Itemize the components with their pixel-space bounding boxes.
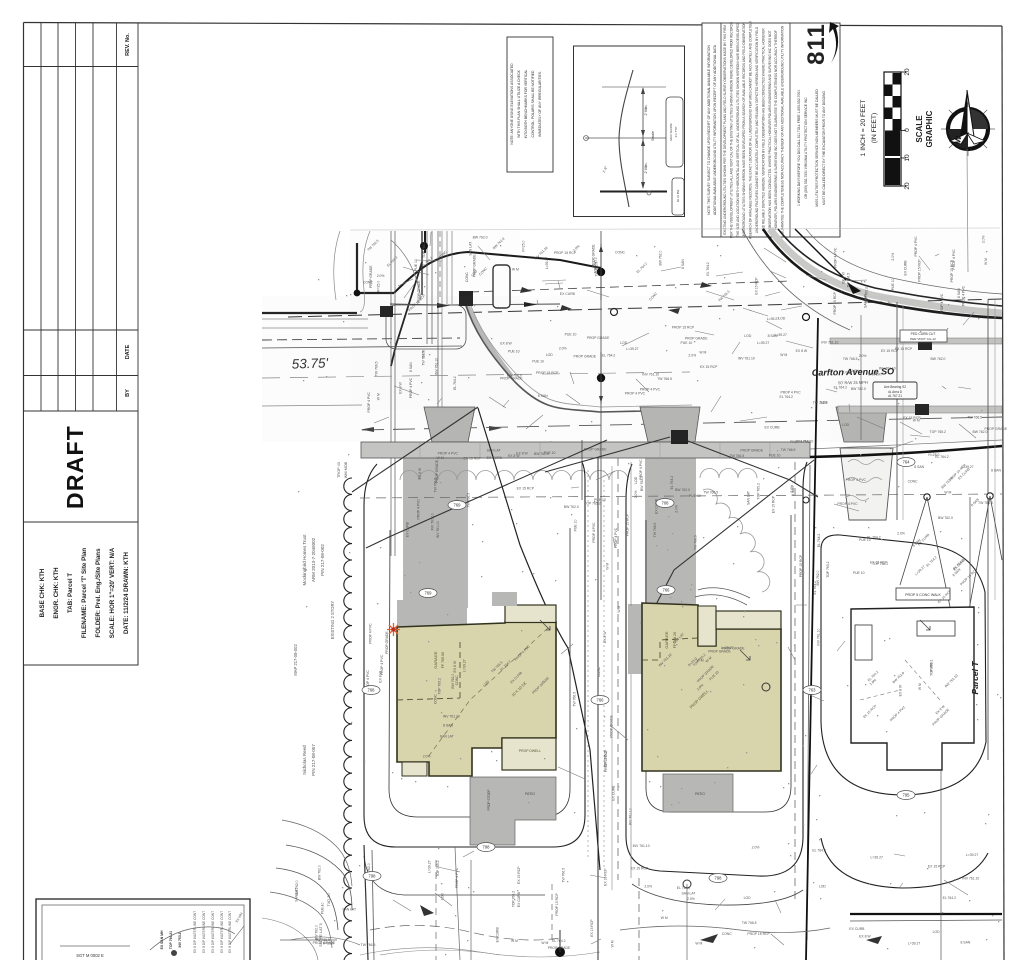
svg-text:FILENAME: Parcel 'T' Site P: FILENAME: Parcel 'T' Site Plan (81, 548, 88, 638)
svg-text:PROP 4 PVC: PROP 4 PVC (409, 377, 413, 398)
svg-text:PROP 15 RCP: PROP 15 RCP (536, 371, 559, 375)
svg-text:W M: W M (780, 353, 787, 357)
svg-text:EX 8 DIP WATERLINE CONT: EX 8 DIP WATERLINE CONT (220, 911, 224, 953)
svg-text:INV 753.2: INV 753.2 (178, 932, 182, 947)
svg-text:20: 20 (904, 182, 911, 190)
svg-text:PROP GRADE: PROP GRADE (722, 646, 745, 650)
svg-text:L=39.27: L=39.27 (908, 942, 920, 946)
svg-text:SAN LAT: SAN LAT (294, 888, 298, 902)
svg-text:EX 8 W: EX 8 W (516, 452, 528, 456)
svg-text:OR (800) 552-7001 VIRGINIA UTI: OR (800) 552-7001 VIRGINIA UTILITY PROTE… (804, 97, 808, 199)
svg-text:CONC: CONC (722, 932, 733, 936)
svg-text:W M: W M (541, 941, 548, 945)
svg-text:2.0%: 2.0% (634, 491, 638, 499)
svg-text:EX 8 W: EX 8 W (379, 670, 383, 682)
svg-text:DATE: 11/2/24 DRAWN: KTH: DATE: 11/2/24 DRAWN: KTH (123, 551, 130, 634)
svg-text:IMMEDIATELY OF ANY IRREGULARIT: IMMEDIATELY OF ANY IRREGULARITIES. (538, 71, 542, 137)
svg-text:MAX SLOPE: MAX SLOPE (669, 123, 673, 140)
svg-text:PROP GRADE: PROP GRADE (435, 459, 439, 482)
svg-text:EX 15 RCP: EX 15 RCP (517, 486, 535, 490)
svg-text:766: 766 (663, 588, 671, 593)
svg-text:1 INCH = 20 FEET: 1 INCH = 20 FEET (860, 100, 867, 157)
svg-text:8 SAN: 8 SAN (957, 288, 961, 298)
svg-text:TOP 765.2: TOP 765.2 (865, 287, 869, 303)
svg-text:PUE 10: PUE 10 (414, 259, 418, 271)
svg-text:PUE 10: PUE 10 (853, 571, 865, 575)
svg-text:GRAPHIC: GRAPHIC (925, 110, 934, 147)
svg-text:20: 20 (904, 68, 911, 76)
svg-text:PER THE VDEVELOPMENT UTILITIES: PER THE VDEVELOPMENT UTILITIES ALL AND V… (729, 22, 733, 238)
svg-text:PROP GRADE: PROP GRADE (369, 265, 373, 288)
svg-text:2.0%: 2.0% (559, 347, 567, 351)
svg-text:PUE 10: PUE 10 (320, 902, 324, 914)
svg-text:TOP 765.2: TOP 765.2 (436, 860, 440, 876)
svg-text:EL 764.2: EL 764.2 (935, 455, 949, 459)
svg-text:764: 764 (903, 460, 911, 465)
svg-text:UNDERGROUND FEATURES CANNOT BE: UNDERGROUND FEATURES CANNOT BE ACCURATEL… (755, 26, 759, 233)
svg-text:EX 8 W: EX 8 W (603, 631, 607, 643)
svg-text:BW 762.0: BW 762.0 (675, 488, 690, 492)
svg-text:W M: W M (697, 659, 704, 663)
svg-text:AND RELIABLY DEPICTED HEREON.: AND RELIABLY DEPICTED HEREON. VERIFICATI… (761, 28, 765, 232)
svg-text:763: 763 (809, 688, 817, 693)
svg-text:EX 8 W: EX 8 W (841, 271, 845, 283)
svg-text:LOD: LOD (744, 334, 752, 338)
svg-text:INV 761.10: INV 761.10 (431, 513, 435, 530)
svg-text:TW 766.5: TW 766.5 (561, 868, 565, 883)
svg-text:BW 762.0: BW 762.0 (938, 516, 953, 520)
svg-text:PROP 4 PVC: PROP 4 PVC (846, 478, 867, 482)
svg-text:2.0%: 2.0% (851, 369, 859, 373)
svg-text:TW 766.5: TW 766.5 (657, 377, 672, 381)
svg-text:768: 768 (368, 688, 376, 693)
svg-text:GARAGE: GARAGE (664, 631, 669, 648)
svg-text:DATE: DATE (125, 344, 131, 359)
svg-text:INV 761.10: INV 761.10 (436, 521, 440, 538)
svg-text:L=39.27: L=39.27 (966, 853, 978, 857)
svg-text:PROP 4 PVC: PROP 4 PVC (625, 391, 646, 395)
svg-text:SAN LAT: SAN LAT (682, 891, 696, 895)
svg-text:PROP 15 RCP: PROP 15 RCP (554, 251, 577, 255)
svg-text:PIN 217-08-002: PIN 217-08-002 (320, 544, 325, 576)
svg-text:EX CURB: EX CURB (406, 521, 410, 537)
svg-text:MUST BE CALLED DIRECT BY THE E: MUST BE CALLED DIRECT BY THE EXCAVATOR P… (822, 91, 826, 205)
svg-text:BY: BY (125, 389, 131, 397)
svg-text:THE SIZE AND LOCATION BOTH HOR: THE SIZE AND LOCATION BOTH HORIZONTAL AN… (736, 22, 740, 237)
svg-text:CONC: CONC (615, 251, 626, 255)
svg-text:10: 10 (904, 154, 911, 162)
svg-text:53.75': 53.75' (291, 355, 328, 371)
svg-text:2.0%: 2.0% (675, 505, 679, 513)
svg-text:EXISTING UNDERGROUND UTILITIES: EXISTING UNDERGROUND UTILITIES SHOWN PER… (723, 25, 727, 235)
svg-text:EX CURB: EX CURB (517, 891, 521, 907)
svg-text:EX 15 RCP: EX 15 RCP (754, 277, 758, 295)
svg-text:PROP 4 PVC: PROP 4 PVC (438, 451, 459, 455)
svg-text:WM MOB: WM MOB (344, 461, 348, 478)
svg-text:TW 766.5: TW 766.5 (693, 535, 697, 550)
svg-text:EX 15 RCP: EX 15 RCP (590, 919, 594, 937)
svg-text:PROP 4 PVC: PROP 4 PVC (914, 236, 918, 257)
svg-text:PROP 15 RCP: PROP 15 RCP (833, 291, 837, 314)
svg-text:TOP 765.2: TOP 765.2 (512, 891, 516, 907)
svg-text:0: 0 (904, 128, 911, 132)
svg-text:PROP 4 PVC: PROP 4 PVC (417, 499, 421, 520)
svg-text:INV 761.10: INV 761.10 (443, 714, 460, 718)
svg-text:PROP 4 PVC: PROP 4 PVC (962, 285, 966, 306)
svg-text:BW 762.0: BW 762.0 (451, 674, 455, 689)
svg-text:EXISTING 2 STORY: EXISTING 2 STORY (330, 601, 335, 640)
svg-text:INV 761.10: INV 761.10 (962, 876, 979, 880)
svg-text:766: 766 (597, 698, 605, 703)
svg-text:PROP 15 RCP: PROP 15 RCP (950, 259, 954, 282)
svg-text:EX 15 RCP: EX 15 RCP (464, 457, 482, 461)
svg-text:2.0%: 2.0% (843, 370, 851, 374)
svg-text:EX CURB: EX CURB (560, 292, 576, 296)
svg-text:2.0%: 2.0% (891, 253, 895, 261)
svg-text:PROP 15 RCP: PROP 15 RCP (672, 325, 695, 329)
svg-text:8 SAN: 8 SAN (443, 724, 453, 728)
svg-text:PROP GRADE: PROP GRADE (685, 337, 708, 341)
svg-text:PUE 10: PUE 10 (689, 494, 701, 498)
svg-text:W M: W M (617, 606, 621, 613)
svg-text:INV 761.10: INV 761.10 (435, 358, 439, 375)
svg-text:2.0%: 2.0% (644, 884, 652, 888)
svg-text:8 SAN: 8 SAN (991, 468, 1001, 472)
svg-text:CONC: CONC (908, 480, 919, 484)
svg-text:CONC: CONC (363, 280, 374, 284)
svg-text:FF 765.60: FF 765.60 (441, 652, 445, 668)
svg-text:PROP 4 PVC: PROP 4 PVC (940, 293, 944, 314)
svg-text:INV 761.10: INV 761.10 (879, 366, 896, 370)
svg-text:PROP GRADE: PROP GRADE (587, 336, 610, 340)
svg-text:BASE CHK: KTH: BASE CHK: KTH (39, 568, 46, 617)
svg-text:MAP 217-08-002: MAP 217-08-002 (293, 644, 298, 676)
svg-text:2.0%: 2.0% (423, 754, 431, 758)
svg-text:FF 766.20: FF 766.20 (673, 632, 677, 648)
svg-text:708: 708 (662, 501, 670, 506)
svg-text:W M: W M (944, 491, 951, 495)
svg-text:TW 766.5: TW 766.5 (374, 361, 378, 376)
svg-text:L=39.27: L=39.27 (775, 333, 787, 337)
svg-text:L=39.27: L=39.27 (871, 855, 883, 859)
svg-text:BW 762.0: BW 762.0 (507, 373, 522, 377)
svg-text:EX 15 RCP: EX 15 RCP (604, 868, 608, 886)
svg-text:TW 766.5: TW 766.5 (315, 938, 330, 942)
svg-text:EX SAN MH: EX SAN MH (160, 930, 164, 949)
svg-text:EL 764.2: EL 764.2 (670, 476, 674, 490)
svg-text:L=39.27: L=39.27 (757, 341, 769, 345)
svg-text:EX 15 RCP: EX 15 RCP (870, 560, 888, 564)
svg-text:EX 8 W: EX 8 W (859, 934, 871, 938)
svg-text:TOP 765.2: TOP 765.2 (422, 242, 426, 258)
svg-text:LOD: LOD (744, 896, 752, 900)
svg-text:1 WORKING DAYS BEFORE YOU DIG: 1 WORKING DAYS BEFORE YOU DIG CALL 811 T… (797, 90, 801, 206)
svg-text:2.0%: 2.0% (859, 354, 867, 358)
svg-text:INV 761.10: INV 761.10 (633, 844, 650, 848)
svg-text:No 11 BW: No 11 BW (676, 189, 680, 202)
svg-text:TOP 765.2: TOP 765.2 (438, 678, 442, 694)
svg-text:TW 766.5: TW 766.5 (846, 273, 850, 288)
svg-text:EX CURB: EX CURB (904, 260, 908, 276)
svg-text:EX 8 W: EX 8 W (796, 349, 808, 353)
svg-text:FOLDER: Prel. Eng./Site Pl: FOLDER: Prel. Eng./Site Plans (95, 548, 102, 638)
svg-text:HOWEVER, POLARIS ENGINEERING &: HOWEVER, POLARIS ENGINEERING & SURVEYING… (774, 30, 778, 229)
svg-text:CONC: CONC (465, 272, 469, 283)
svg-text:DRAFT: DRAFT (62, 425, 88, 509)
svg-text:A SEARCH OF AVAILABLE RECORDS.: A SEARCH OF AVAILABLE RECORDS. THE EXACT… (749, 20, 753, 239)
svg-text:LOD: LOD (819, 884, 827, 888)
svg-text:TW 766.5: TW 766.5 (978, 501, 993, 505)
svg-text:EX 8 W: EX 8 W (453, 660, 457, 672)
svg-text:ARM 2013-7-2046002: ARM 2013-7-2046002 (311, 537, 316, 582)
svg-text:PATIO: PATIO (695, 792, 705, 796)
svg-text:PROP 4 PVC: PROP 4 PVC (640, 387, 661, 391)
svg-text:EL 764.2: EL 764.2 (552, 939, 566, 943)
svg-text:EX 8 W: EX 8 W (899, 684, 903, 696)
svg-text:BW 762.0: BW 762.0 (564, 505, 579, 509)
svg-text:CONTROL. POLARIS SHALL BE NOT: CONTROL. POLARIS SHALL BE NOTIFIED (531, 70, 535, 137)
svg-text:798: 798 (369, 874, 377, 879)
svg-text:TW 766.5: TW 766.5 (361, 943, 376, 947)
svg-text:PROP 15 RCP: PROP 15 RCP (747, 932, 770, 936)
svg-text:TOP 765.2: TOP 765.2 (930, 430, 946, 434)
svg-text:EX 8 W: EX 8 W (500, 342, 512, 346)
svg-text:SAN LAT: SAN LAT (868, 373, 882, 377)
svg-text:PROP 4 PVC: PROP 4 PVC (834, 247, 838, 268)
svg-text:NOTE: ANYONE USING ELEVATIONS: NOTE: ANYONE USING ELEVATIONS ASSOCIATED (510, 63, 514, 145)
svg-text:W M: W M (610, 940, 614, 947)
svg-text:BW 762.0: BW 762.0 (816, 570, 820, 585)
svg-text:LOD: LOD (842, 423, 850, 427)
svg-text:2' Min.: 2' Min. (644, 162, 648, 173)
svg-text:BW 762.0: BW 762.0 (534, 452, 549, 456)
svg-text:Nicholas Reed: Nicholas Reed (302, 745, 307, 775)
svg-text:PROP STOOP: PROP STOOP (487, 790, 491, 811)
svg-text:769: 769 (425, 591, 433, 596)
svg-text:PROP GRADE: PROP GRADE (584, 448, 607, 452)
svg-text:EL 764.2: EL 764.2 (706, 262, 710, 276)
svg-text:TOP 765.2: TOP 765.2 (584, 502, 600, 506)
svg-text:EL 764.2: EL 764.2 (943, 896, 957, 900)
svg-text:769: 769 (454, 503, 462, 508)
svg-text:BW 762.0: BW 762.0 (473, 235, 488, 239)
svg-text:TW 766.5: TW 766.5 (703, 490, 718, 494)
svg-text:PER VDOT CG-12: PER VDOT CG-12 (910, 337, 936, 341)
svg-text:EX 15 RCP: EX 15 RCP (928, 865, 946, 869)
svg-text:PROP 15 RCP: PROP 15 RCP (625, 513, 629, 536)
svg-text:811: 811 (803, 23, 830, 65)
svg-text:BW 762.0: BW 762.0 (851, 387, 866, 391)
svg-text:8 SAN: 8 SAN (409, 362, 413, 372)
svg-text:W M: W M (695, 942, 702, 946)
svg-text:TOP 765.2: TOP 765.2 (594, 257, 598, 273)
svg-text:L=39.27: L=39.27 (767, 317, 779, 321)
svg-text:W M: W M (913, 419, 920, 423)
svg-text:W M: W M (376, 393, 380, 400)
svg-text:BW 762.0: BW 762.0 (658, 251, 662, 266)
svg-text:TOP 765.2: TOP 765.2 (929, 660, 933, 676)
svg-text:PUE 10: PUE 10 (508, 350, 520, 354)
svg-text:INV 761.10: INV 761.10 (738, 357, 755, 361)
svg-text:W M: W M (918, 683, 922, 690)
svg-text:TROP 43: TROP 43 (337, 462, 341, 478)
svg-text:L=39.27: L=39.27 (463, 659, 467, 671)
svg-text:EX 8 W: EX 8 W (418, 467, 422, 479)
svg-text:NOTE: THIS SURVEY SUBJECT TO C: NOTE: THIS SURVEY SUBJECT TO CHANGE UPON… (707, 45, 711, 215)
svg-text:798: 798 (483, 845, 491, 850)
svg-text:795: 795 (903, 793, 911, 798)
svg-text:PROP 4 PVC: PROP 4 PVC (455, 867, 459, 888)
svg-text:PED CURB CUT: PED CURB CUT (911, 332, 936, 336)
svg-text:TXD 20: TXD 20 (327, 894, 331, 907)
svg-text:PROP 4 PVC: PROP 4 PVC (639, 459, 643, 480)
svg-text:PROP 4 PVC: PROP 4 PVC (368, 623, 372, 644)
svg-text:BW 762.0: BW 762.0 (317, 865, 321, 880)
svg-text:EL 764.2: EL 764.2 (677, 886, 691, 890)
svg-text:CONC: CONC (455, 675, 459, 686)
svg-text:W M: W M (699, 351, 706, 355)
svg-text:8 SAN: 8 SAN (960, 941, 970, 945)
svg-text:PUE 10: PUE 10 (859, 538, 871, 542)
svg-text:UNDERGROUND UTILITIES SHOWN HE: UNDERGROUND UTILITIES SHOWN HEREON HAVE … (742, 22, 746, 238)
svg-text:EX 8 DIP WATERLINE CONT: EX 8 DIP WATERLINE CONT (202, 911, 206, 953)
svg-text:TW 766.5: TW 766.5 (729, 454, 744, 458)
svg-text:3:1 TYP: 3:1 TYP (674, 127, 678, 138)
svg-text:PROP 15 RCP: PROP 15 RCP (918, 259, 922, 282)
svg-text:LOD: LOD (634, 476, 638, 484)
svg-text:798: 798 (715, 876, 723, 881)
svg-text:Mockingbird Homes Trust: Mockingbird Homes Trust (302, 534, 307, 586)
svg-text:L=39.27: L=39.27 (427, 860, 431, 872)
svg-text:WITH THIS PLAN SHALL UTILIZE A: WITH THIS PLAN SHALL UTILIZE A CHECK (517, 69, 521, 138)
svg-text:EL 764.2: EL 764.2 (817, 534, 821, 548)
svg-text:2' Min.: 2' Min. (644, 104, 648, 115)
svg-text:L=39.27: L=39.27 (626, 347, 638, 351)
svg-text:2.0%: 2.0% (377, 274, 385, 278)
svg-text:W M: W M (661, 916, 668, 920)
svg-text:PROP 5 CONC WALK: PROP 5 CONC WALK (905, 593, 941, 597)
svg-text:EX 8 DIP WATERLINE CONT: EX 8 DIP WATERLINE CONT (193, 911, 197, 953)
svg-text:SAN LAT: SAN LAT (747, 491, 751, 505)
svg-text:ADDITIONAL AVAILABLE UNDERGROU: ADDITIONAL AVAILABLE UNDERGROUND UTILITY… (713, 44, 717, 215)
svg-text:SAN LAT: SAN LAT (440, 734, 454, 738)
svg-text:PROP 4 PVC: PROP 4 PVC (367, 392, 371, 413)
svg-text:2.0%: 2.0% (752, 846, 760, 850)
svg-text:REV. No.: REV. No. (125, 33, 131, 56)
svg-text:GARAGE: GARAGE (433, 651, 438, 668)
svg-text:2.0%: 2.0% (820, 400, 828, 404)
svg-text:PROP DWELL: PROP DWELL (519, 749, 541, 753)
svg-text:BW 762.0: BW 762.0 (931, 357, 946, 361)
svg-text:EX 15 RCP: EX 15 RCP (517, 866, 521, 884)
svg-text:Parcel T: Parcel T (970, 661, 980, 695)
svg-text:W M: W M (512, 267, 519, 271)
svg-text:TW 766.5: TW 766.5 (967, 415, 982, 419)
svg-text:(IN FEET): (IN FEET) (871, 113, 878, 144)
svg-text:PROP GRADE: PROP GRADE (385, 631, 389, 654)
svg-text:EX CURB: EX CURB (764, 426, 780, 430)
svg-text:EX CURB: EX CURB (849, 927, 865, 931)
svg-text:W M: W M (437, 456, 444, 460)
svg-text:8 SAN: 8 SAN (538, 394, 548, 398)
svg-text:GUARANTEE THE COMPLETENESS NOR: GUARANTEE THE COMPLETENESS NOR ACCURACY … (781, 25, 785, 234)
svg-text:PUE 10: PUE 10 (532, 360, 544, 364)
svg-text:EX CURB: EX CURB (487, 456, 503, 460)
svg-text:PROP GRADE: PROP GRADE (985, 427, 1008, 431)
svg-text:LOD: LOD (778, 317, 786, 321)
svg-text:8 SAN: 8 SAN (681, 259, 685, 269)
svg-text:EX 15 RCP: EX 15 RCP (700, 365, 718, 369)
svg-text:Swale: Swale (651, 131, 655, 141)
svg-text:CONC: CONC (434, 694, 438, 705)
svg-text:R=25.0: R=25.0 (377, 281, 381, 292)
svg-text:PROP 4 PVC: PROP 4 PVC (790, 440, 811, 444)
svg-text:PROP GRADE: PROP GRADE (740, 449, 763, 453)
svg-text:EX CURB: EX CURB (495, 927, 499, 943)
svg-text:SCALE: HOR 1"=20' VERT: N/A: SCALE: HOR 1"=20' VERT: N/A (109, 547, 116, 638)
svg-text:LOD: LOD (546, 353, 554, 357)
svg-text:8 SAN: 8 SAN (791, 486, 795, 496)
svg-text:EL 764.2: EL 764.2 (812, 848, 826, 852)
svg-text:PROP 4 PVC: PROP 4 PVC (780, 391, 801, 395)
svg-text:PIN 217-08-057: PIN 217-08-057 (311, 744, 316, 776)
svg-text:PUE 10: PUE 10 (891, 278, 895, 290)
svg-text:EX 15 RCP: EX 15 RCP (631, 867, 649, 871)
svg-text:MISS UTILITIES PROTECTION SERV: MISS UTILITIES PROTECTION SERVICE NON-ME… (815, 89, 819, 207)
svg-text:PROP 15 RCP: PROP 15 RCP (799, 554, 803, 577)
svg-text:TOP 764.21: TOP 764.21 (169, 931, 173, 949)
svg-text:PROP 4 PVC: PROP 4 PVC (837, 502, 858, 506)
svg-text:TW 766.5: TW 766.5 (781, 448, 796, 452)
svg-text:SAN LAT: SAN LAT (487, 448, 501, 452)
svg-text:SAN LAT: SAN LAT (468, 242, 472, 256)
svg-text:OBSERVATION HAS BEEN CONDUCTED: OBSERVATION HAS BEEN CONDUCTED. WHERE PR… (768, 30, 772, 229)
svg-text:TOP 765.2: TOP 765.2 (826, 561, 830, 577)
svg-text:TW 766.5: TW 766.5 (742, 921, 757, 925)
svg-text:PATIO: PATIO (525, 792, 535, 796)
svg-text:PROP 4 PVC: PROP 4 PVC (592, 522, 596, 543)
svg-text:W M: W M (606, 563, 610, 570)
svg-text:EX 15 RCP: EX 15 RCP (771, 495, 775, 513)
svg-text:TAB: Parcel T: TAB: Parcel T (67, 573, 74, 613)
svg-text:EL 764.2: EL 764.2 (453, 376, 457, 390)
svg-text:TW 766.5: TW 766.5 (572, 692, 576, 707)
svg-text:INV 761.10: INV 761.10 (817, 629, 821, 646)
svg-text:R=25.0: R=25.0 (521, 240, 525, 251)
svg-text:PUE 10: PUE 10 (573, 520, 577, 532)
svg-text:EL 764.2: EL 764.2 (779, 395, 793, 399)
svg-text:EX 8 DIP WATERLINE CONT: EX 8 DIP WATERLINE CONT (211, 911, 215, 953)
svg-text:TOP 765.2: TOP 765.2 (756, 483, 760, 499)
svg-text:PROP GRADE: PROP GRADE (574, 355, 597, 359)
svg-text:EX 15 RCP: EX 15 RCP (881, 349, 899, 353)
svg-text:R=25.0: R=25.0 (323, 942, 334, 946)
svg-text:PROP 15 RCP: PROP 15 RCP (555, 892, 559, 915)
svg-text:CONC: CONC (597, 666, 601, 677)
svg-text:EX CURB: EX CURB (611, 785, 615, 801)
svg-text:INV 761.10: INV 761.10 (821, 341, 838, 345)
svg-text:SAN LAT: SAN LAT (342, 908, 356, 912)
svg-text:EL 764.2: EL 764.2 (602, 354, 616, 358)
svg-text:PROP 15 RCP: PROP 15 RCP (604, 749, 608, 772)
svg-text:ENGR. CHK: KTH: ENGR. CHK: KTH (53, 567, 60, 619)
svg-text:SGT M 0002 E: SGT M 0002 E (76, 953, 104, 958)
svg-text:INTO BOTH BENCHMARKS FOR VERTI: INTO BOTH BENCHMARKS FOR VERTICAL (524, 69, 528, 138)
svg-text:INV 761.10: INV 761.10 (628, 808, 632, 825)
svg-text:2.0%: 2.0% (687, 897, 695, 901)
svg-text:TW 766.5: TW 766.5 (422, 351, 426, 366)
svg-text:LOD: LOD (620, 341, 628, 345)
